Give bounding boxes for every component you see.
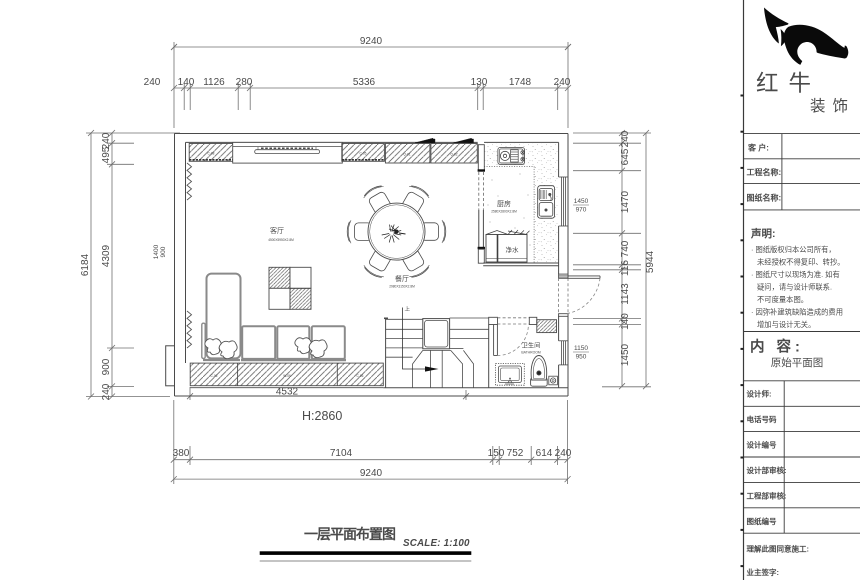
svg-text:工程名称:: 工程名称: (747, 167, 782, 177)
svg-text:设计部审核:: 设计部审核: (747, 465, 787, 475)
svg-text:原始平面图: 原始平面图 (771, 356, 824, 369)
svg-text:· 图纸版权归本公司所有，: · 图纸版权归本公司所有， (751, 245, 836, 254)
svg-text:理解此图同意施工:: 理解此图同意施工: (747, 544, 810, 554)
svg-text:工程部审核:: 工程部审核: (747, 490, 787, 500)
svg-text:疑问，请与设计师联系.: 疑问，请与设计师联系. (757, 283, 832, 292)
svg-text:红牛: 红牛 (756, 71, 821, 96)
svg-text:电话号码: 电话号码 (747, 414, 777, 424)
svg-text:设计编号: 设计编号 (747, 440, 777, 450)
svg-text:客 户:: 客 户: (747, 143, 769, 153)
svg-text:未经授权不得复印、转抄。: 未经授权不得复印、转抄。 (757, 258, 845, 267)
svg-text:业主签字:: 业主签字: (747, 567, 780, 577)
svg-text:不可度量本图。: 不可度量本图。 (757, 295, 808, 304)
svg-text:图纸编号: 图纸编号 (747, 516, 777, 526)
svg-text:声明:: 声明: (750, 227, 776, 240)
svg-text:· 图纸尺寸以现场为准. 如有: · 图纸尺寸以现场为准. 如有 (751, 270, 840, 279)
svg-text:增加与设计无关。: 增加与设计无关。 (757, 320, 815, 329)
svg-text:图纸名称:: 图纸名称: (747, 193, 782, 203)
svg-text:内 容:: 内 容: (750, 338, 804, 356)
svg-text:设计师:: 设计师: (747, 389, 772, 399)
svg-text:· 因弥补建筑缺陷造成的费用: · 因弥补建筑缺陷造成的费用 (751, 308, 843, 317)
svg-text:装饰: 装饰 (810, 97, 855, 115)
